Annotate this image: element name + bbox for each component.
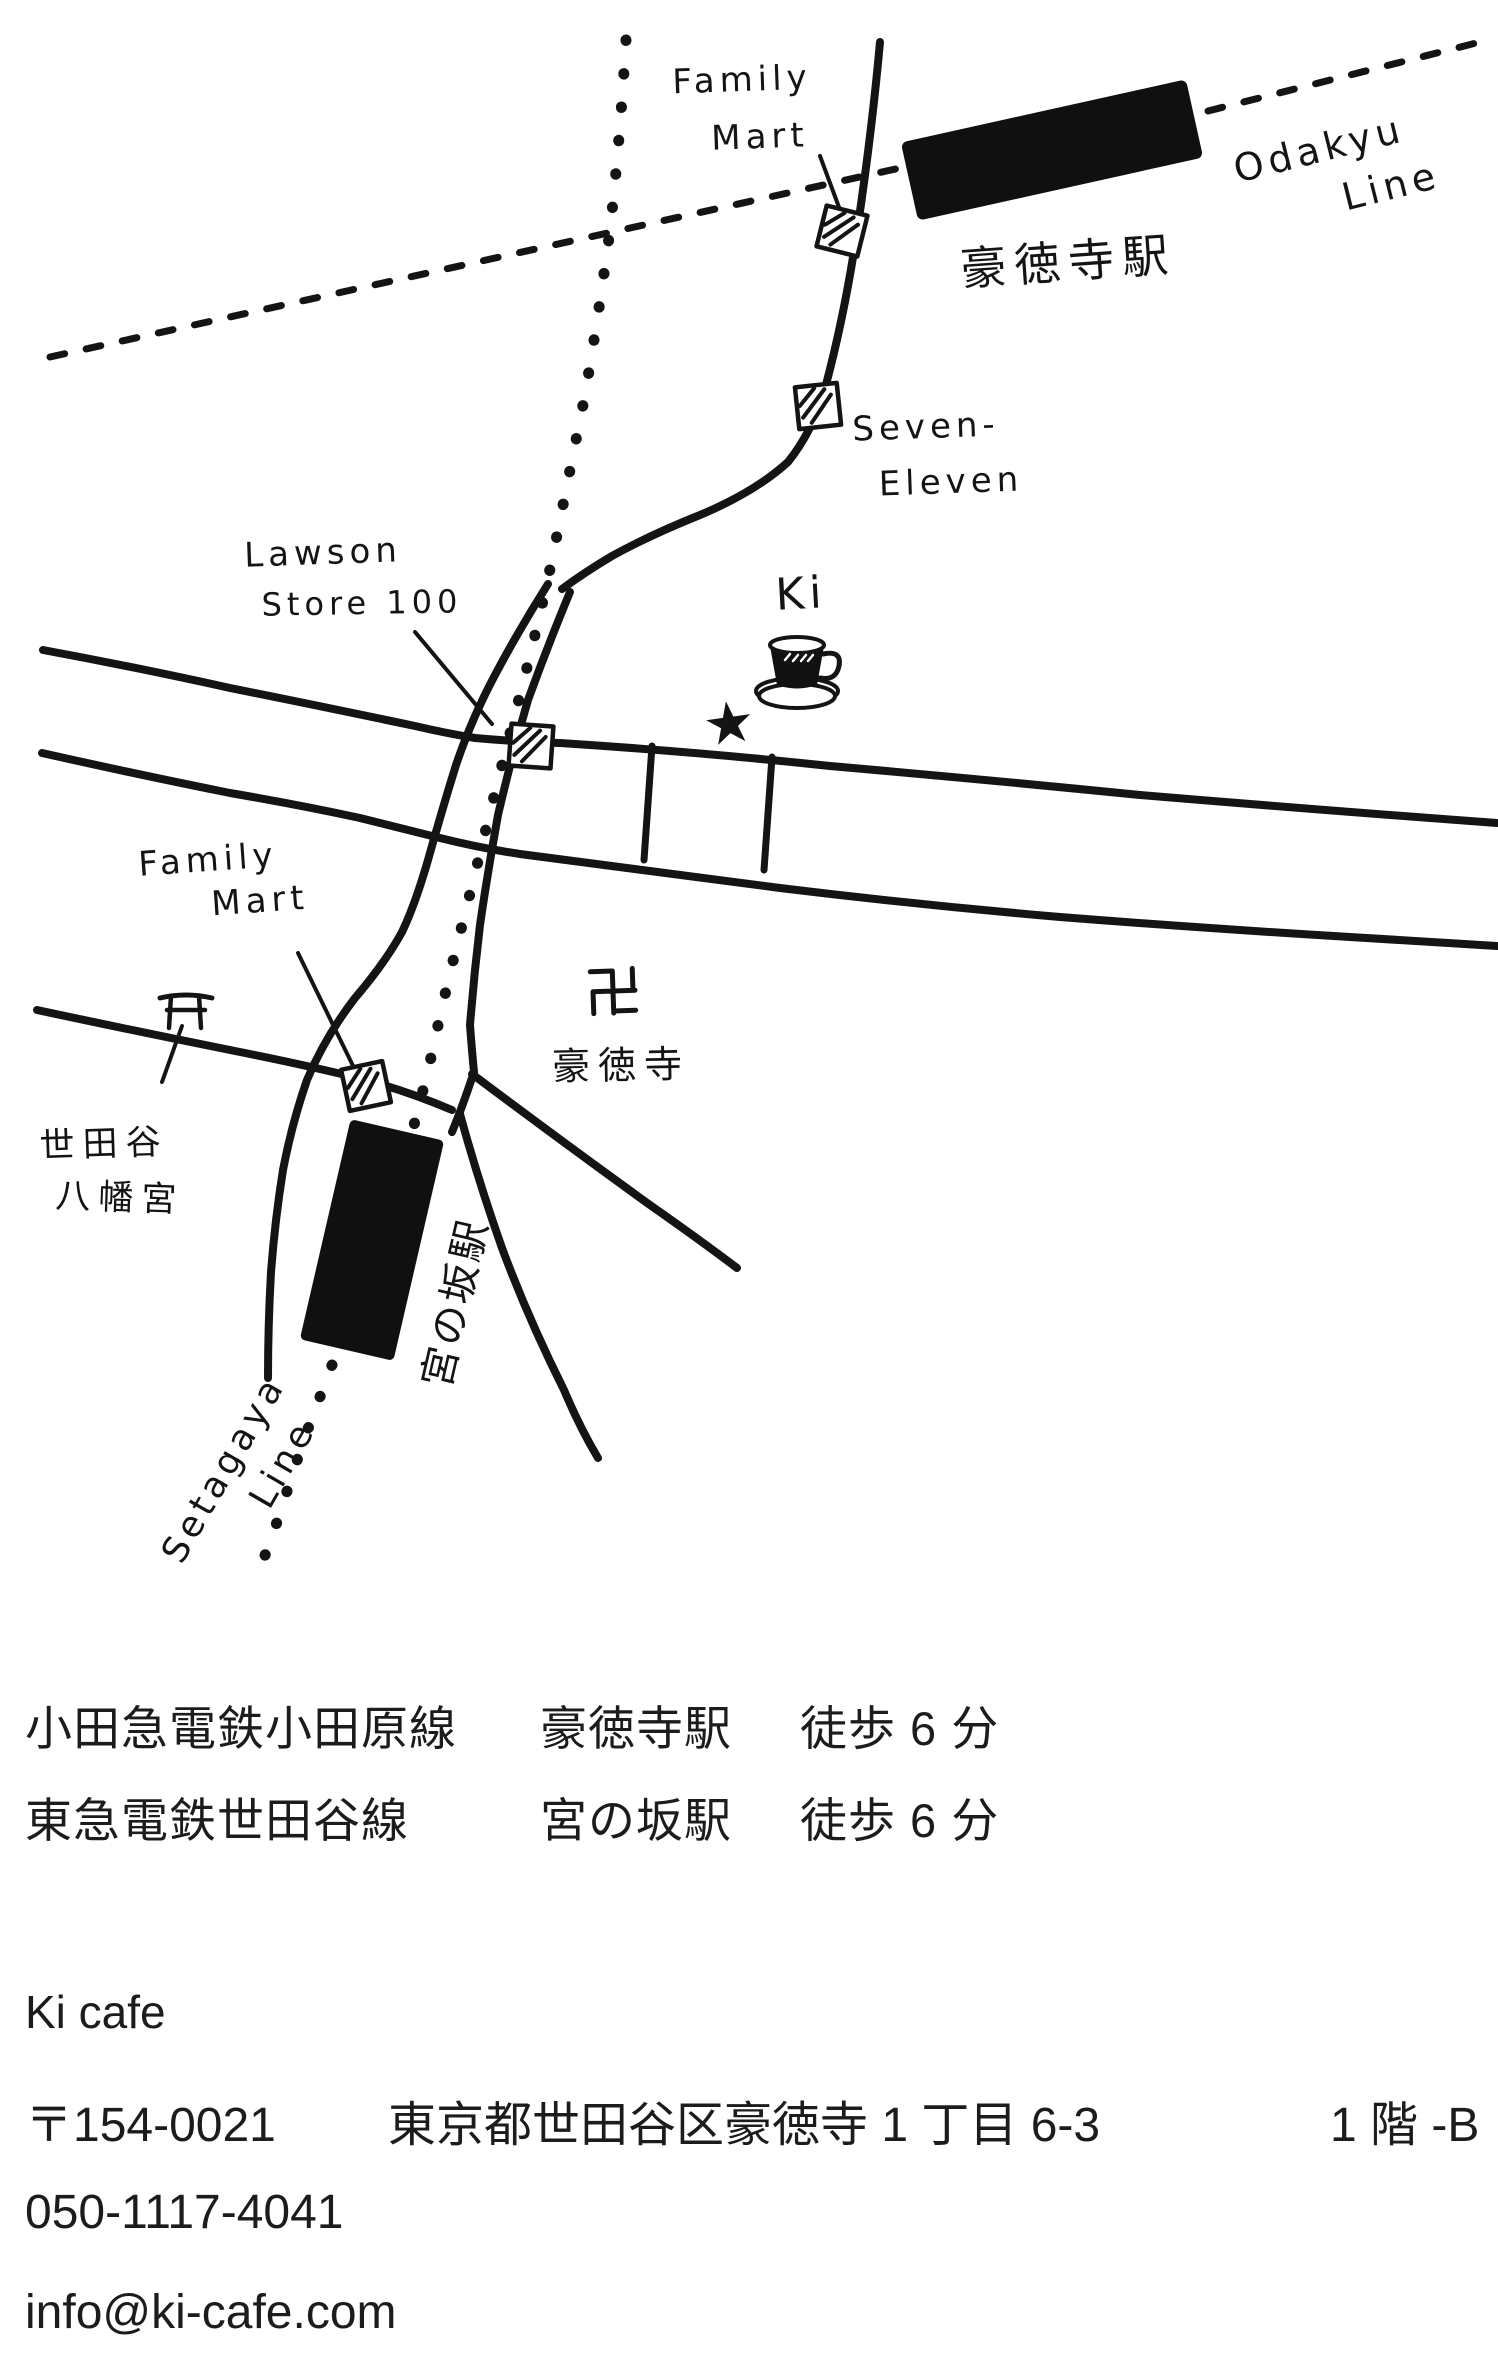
address-line: 〒154-0021 東京都世田谷区豪徳寺 1 丁目 6-3 1 階 -B bbox=[0, 2085, 1498, 2145]
walk-time: 徒歩 6 分 bbox=[800, 1690, 999, 1759]
ki-cafe-access-flyer: { "map": { "labels": { "family_mart_top"… bbox=[0, 0, 1498, 2356]
lawson-label-line1: Lawson bbox=[244, 530, 403, 575]
station-name: 宮の坂駅 bbox=[540, 1782, 732, 1851]
seven-eleven-label-line1: Seven- bbox=[852, 404, 1001, 449]
gotokuji-station-bar bbox=[901, 79, 1203, 220]
setagaya-hachimangu-label-line2: 八幡宮 bbox=[55, 1167, 186, 1222]
odakyu-railway-dashed-line-east bbox=[1208, 39, 1492, 111]
access-row-odakyu: 小田急電鉄小田原線 豪徳寺駅 徒歩 6 分 bbox=[0, 1690, 1498, 1746]
lawson-marker-icon bbox=[509, 724, 554, 769]
access-info-section: 小田急電鉄小田原線 豪徳寺駅 徒歩 6 分 東急電鉄世田谷線 宮の坂駅 徒歩 6… bbox=[0, 1650, 1498, 2356]
phone-number: 050-1117-4041 bbox=[25, 2185, 344, 2240]
unit-floor: 1 階 -B bbox=[1330, 2085, 1479, 2155]
ki-cafe-map-label: Ki bbox=[774, 567, 828, 621]
odakyu-railway-dashed-line bbox=[50, 168, 900, 357]
access-row-tokyu: 東急電鉄世田谷線 宮の坂駅 徒歩 6 分 bbox=[0, 1782, 1498, 1838]
coffee-cup-icon bbox=[756, 637, 839, 708]
family-mart-top-marker-icon bbox=[817, 206, 868, 257]
seven-eleven-marker-icon bbox=[795, 383, 841, 429]
seven-eleven-label-line2: Eleven bbox=[878, 459, 1024, 504]
branch-road-to-temple bbox=[472, 1074, 737, 1268]
leader-lawson bbox=[415, 632, 492, 724]
postal-code: 〒154-0021 bbox=[25, 2085, 276, 2155]
manji-temple-icon bbox=[590, 968, 636, 1014]
family-mart-top-label-line1: Family bbox=[672, 58, 813, 103]
cross-street-connector-2 bbox=[764, 757, 772, 870]
lawson-label-line2: Store 100 bbox=[261, 582, 462, 623]
cafe-location-star-icon: ★ bbox=[699, 686, 760, 761]
cross-street-connector-1 bbox=[644, 746, 652, 860]
email-address: info@ki-cafe.com bbox=[25, 2285, 397, 2340]
railway-name: 小田急電鉄小田原線 bbox=[25, 1690, 457, 1759]
setagaya-hachimangu-label-line1: 世田谷 bbox=[39, 1113, 170, 1168]
torii-shrine-icon bbox=[160, 995, 212, 1028]
gotokuji-temple-label: 豪徳寺 bbox=[552, 1033, 691, 1090]
family-mart-bottom-marker-icon bbox=[341, 1061, 391, 1111]
railway-name: 東急電鉄世田谷線 bbox=[25, 1782, 409, 1851]
cafe-name: Ki cafe bbox=[25, 1985, 166, 2039]
walk-time: 徒歩 6 分 bbox=[800, 1782, 999, 1851]
family-mart-top-label-line2: Mart bbox=[711, 115, 810, 158]
station-name: 豪徳寺駅 bbox=[540, 1690, 732, 1759]
family-mart-bottom-label-line2: Mart bbox=[210, 878, 310, 925]
hand-drawn-map: Family Mart Odakyu Line 豪徳寺駅 Seven- Elev… bbox=[0, 0, 1498, 1650]
street-address: 東京都世田谷区豪徳寺 1 丁目 6-3 bbox=[388, 2085, 1100, 2155]
map-canvas bbox=[0, 0, 1498, 1650]
